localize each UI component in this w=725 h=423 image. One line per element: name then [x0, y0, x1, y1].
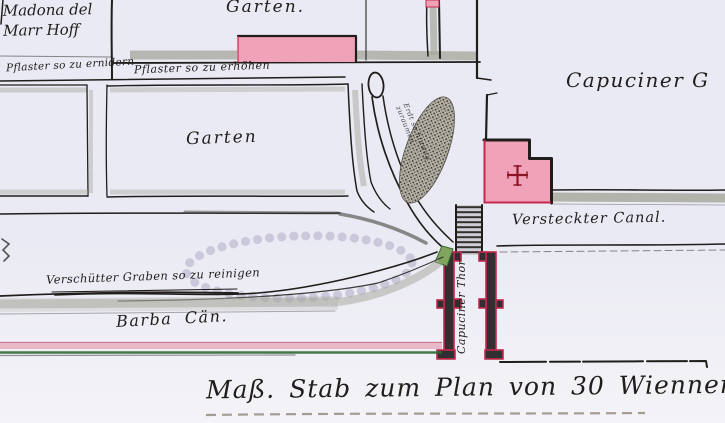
label-madona-line2: Marr Hoff: [3, 20, 79, 39]
historic-map-scan: Madona del Marr Hoff Pflaster so zu erni…: [0, 0, 725, 423]
label-madona-del-marr-hoff: Madona del Marr Hoff: [3, 0, 93, 41]
versteckter-canal-lines: [497, 244, 725, 252]
label-versteckter-canal: Versteckter Canal.: [512, 210, 667, 229]
scale-bar: [206, 413, 645, 415]
label-garten-middle: Garten: [186, 127, 258, 149]
boundary-line-bottom-right: [500, 361, 707, 367]
label-capuciner-thor: Capuciner Thor: [455, 256, 481, 358]
label-capuciner-garten: Capuciner G: [566, 68, 710, 92]
scale-caption: Maß. Stab zum Plan von 30 Wienner Clafte…: [206, 369, 725, 405]
bridge-column: [456, 205, 482, 255]
barba-canal-strips: [0, 343, 442, 356]
church-building: [484, 140, 552, 203]
label-garten-top: Garten.: [226, 0, 305, 17]
label-madona-line1: Madona del: [3, 0, 93, 20]
right-street-band: [553, 190, 725, 205]
